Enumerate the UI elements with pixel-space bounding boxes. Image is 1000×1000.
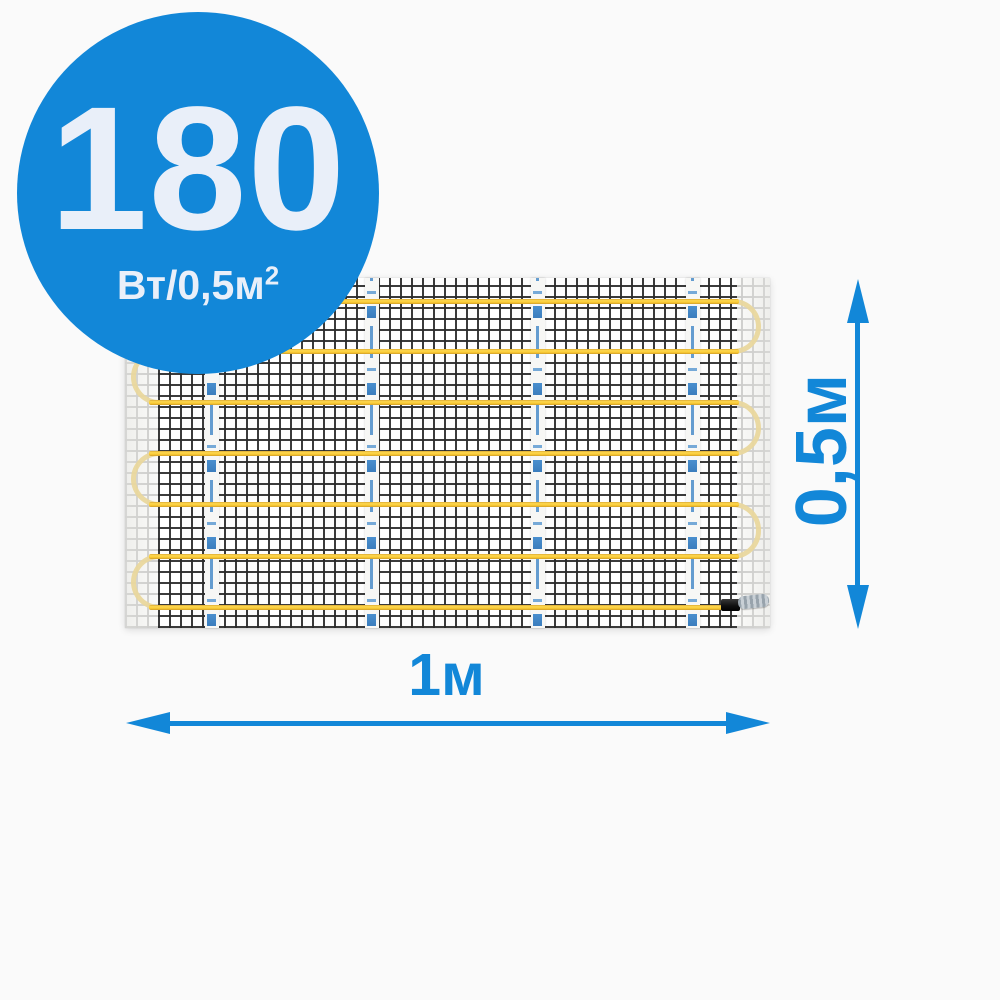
power-unit-superscript: 2: [265, 260, 279, 290]
width-dimension-arrow: [168, 721, 728, 726]
arrow-down-icon: [847, 585, 869, 629]
arrow-right-icon: [726, 712, 770, 734]
width-dimension-label: 1м: [344, 644, 549, 706]
power-value: 180: [50, 81, 347, 257]
arrow-left-icon: [126, 712, 170, 734]
power-unit: Вт/0,5м2: [117, 265, 279, 306]
heating-cable-run: [149, 451, 739, 456]
height-dimension-label: 0,5м: [780, 348, 865, 553]
heating-cable-run: [149, 554, 739, 559]
power-badge: 180 Вт/0,5м2: [17, 12, 379, 374]
heating-cable-run: [149, 400, 739, 405]
heating-cable-run: [149, 605, 722, 610]
arrow-up-icon: [847, 279, 869, 323]
product-image: 180 Вт/0,5м2 0,5м 1м: [0, 0, 1000, 1000]
heating-cable-run: [149, 502, 739, 507]
